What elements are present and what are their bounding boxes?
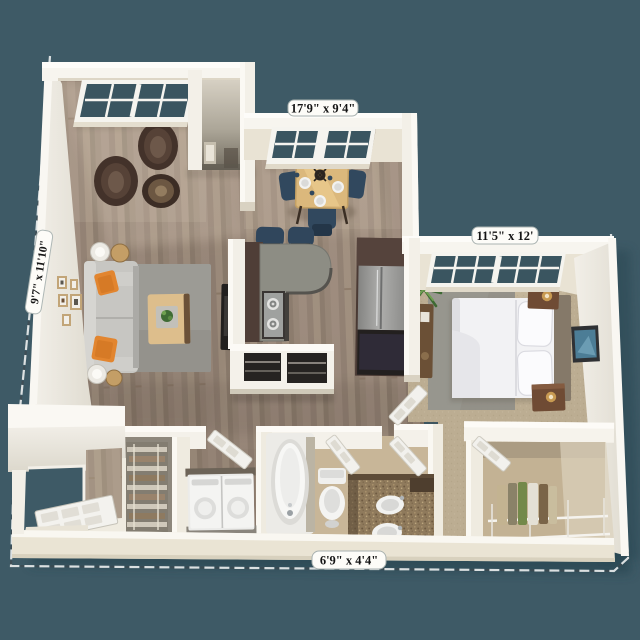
svg-text:11'5" x 12': 11'5" x 12': [477, 229, 534, 243]
svg-text:6'9" x 4'4": 6'9" x 4'4": [320, 554, 378, 568]
svg-text:17'9" x 9'4": 17'9" x 9'4": [291, 102, 356, 116]
